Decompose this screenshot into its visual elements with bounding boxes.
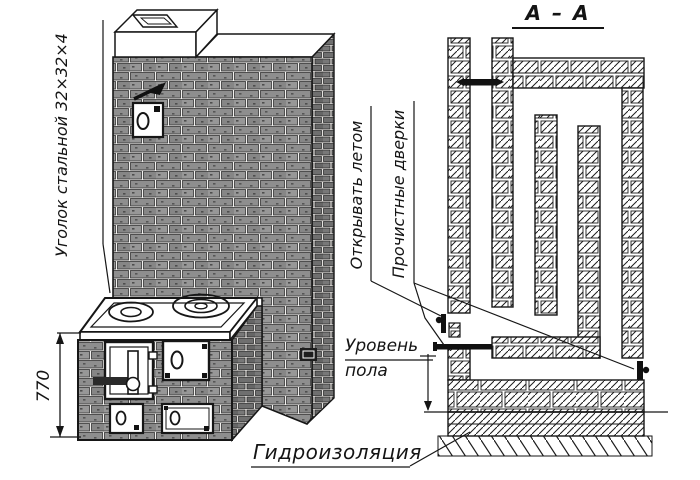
front-cleanout-door bbox=[162, 404, 213, 433]
ash-door bbox=[110, 404, 143, 433]
summer-damper bbox=[456, 78, 504, 86]
steel-angle-leader-line bbox=[103, 20, 110, 293]
floor-level-label-line1: Уровень bbox=[345, 338, 418, 356]
chimney-cap bbox=[115, 10, 217, 57]
firebox-slab bbox=[492, 337, 600, 358]
section-left-wall-stub bbox=[449, 323, 460, 337]
section-right-wall bbox=[622, 88, 643, 358]
section-title: А – А bbox=[512, 3, 604, 29]
flue-baffle-1 bbox=[535, 115, 557, 315]
floor-level-label-line2: пола bbox=[345, 363, 388, 381]
oven-door bbox=[163, 341, 209, 380]
open-summer-label: Открывать летом bbox=[349, 107, 371, 283]
section-left-wall-lower bbox=[448, 349, 470, 380]
waterproofing-label: Гидроизоляция bbox=[253, 442, 422, 463]
section-chimney-inner-wall bbox=[492, 38, 513, 307]
cleanout-doors-label: Прочистные дверки bbox=[391, 99, 413, 289]
tower-side-cleanout-door bbox=[300, 348, 317, 361]
chimney-soot-door bbox=[133, 103, 163, 137]
tower-top-surface bbox=[196, 34, 334, 57]
foundation-upper bbox=[448, 380, 644, 412]
cooktop bbox=[80, 295, 257, 341]
section-cleanout-door-right bbox=[637, 361, 649, 380]
steel-angle-label: Уголок стальной 32×32×4 bbox=[54, 20, 78, 270]
flue-baffle-2 bbox=[578, 126, 600, 358]
section-cleanout-door-left bbox=[436, 314, 446, 333]
ground-hatch bbox=[438, 436, 652, 456]
height-dimension-label: 770 bbox=[36, 356, 56, 416]
stove-technical-drawing: Уголок стальной 32×32×4 770 А – А Открыв… bbox=[0, 0, 700, 480]
stove-isometric-view bbox=[50, 10, 334, 440]
firebox-door-handle-bar bbox=[93, 377, 130, 385]
